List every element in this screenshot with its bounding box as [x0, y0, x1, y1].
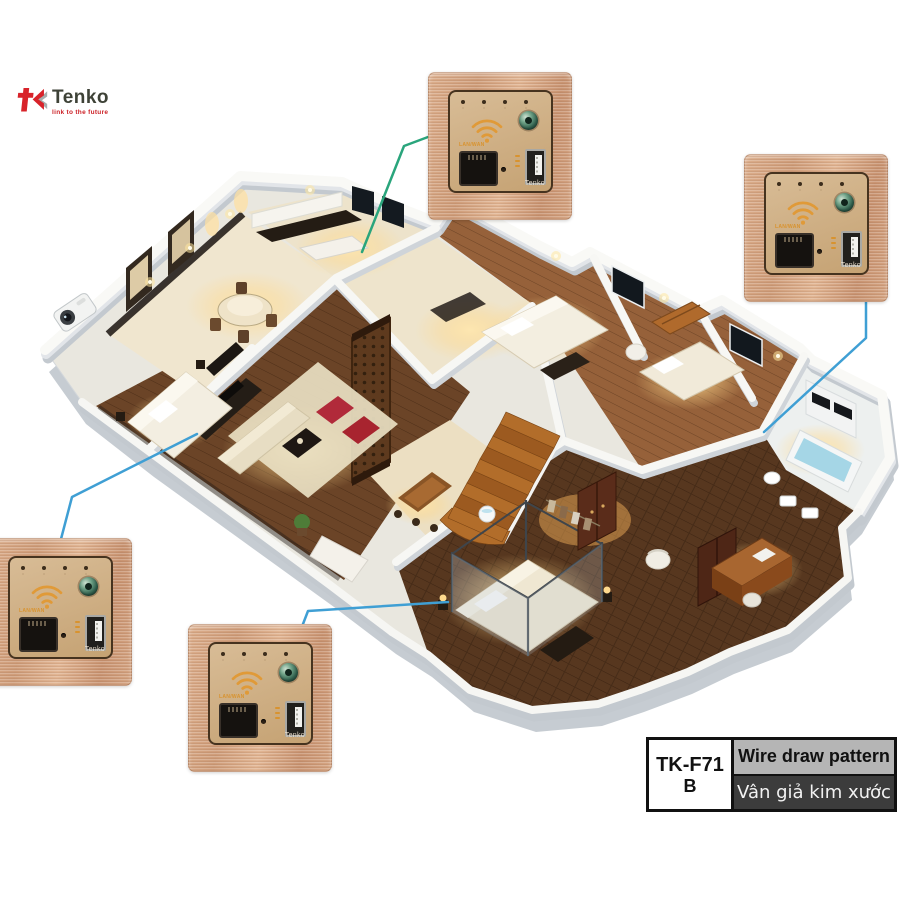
usb-label-marks: [75, 621, 80, 633]
product-variant: B: [684, 776, 697, 796]
product-label: TK-F71 B Wire draw pattern Vân giả kim x…: [646, 737, 897, 812]
product-model-cell: TK-F71 B: [649, 740, 734, 809]
device-brand-mark: Tenko: [285, 732, 305, 739]
led-indicators: [221, 652, 288, 656]
wifi-socket-bottom-left: LAN/WAN Tenko: [0, 538, 132, 686]
reset-pinhole: [501, 167, 506, 172]
device-panel: LAN/WAN Tenko: [448, 90, 553, 193]
lan-port-label: LAN/WAN: [19, 608, 45, 613]
power-button: [835, 193, 854, 212]
led-indicators: [21, 566, 88, 570]
reset-pinhole: [817, 249, 822, 254]
brand-tagline: link to the future: [52, 109, 109, 116]
device-panel: LAN/WAN Tenko: [8, 556, 113, 659]
usb-label-marks: [275, 707, 280, 719]
wifi-icon: [785, 197, 821, 227]
led-indicators: [777, 182, 844, 186]
wifi-icon: [469, 115, 505, 145]
power-button: [519, 111, 538, 130]
device-brand-mark: Tenko: [525, 180, 545, 187]
wifi-socket-bottom-center: LAN/WAN Tenko: [188, 624, 332, 772]
reset-pinhole: [61, 633, 66, 638]
ethernet-port: [459, 151, 498, 186]
device-brand-mark: Tenko: [85, 646, 105, 653]
usb-label-marks: [831, 237, 836, 249]
product-model: TK-F71: [656, 754, 724, 776]
power-button: [279, 663, 298, 682]
product-infographic: Tenko link to the future LAN/WAN Tenko: [0, 0, 900, 900]
lan-port-label: LAN/WAN: [219, 694, 245, 699]
brand-logo: Tenko link to the future: [14, 84, 134, 128]
pattern-name-en: Wire draw pattern: [734, 740, 894, 776]
ethernet-port: [219, 703, 258, 738]
power-button: [79, 577, 98, 596]
ethernet-port: [19, 617, 58, 652]
brand-name: Tenko: [52, 88, 109, 108]
reset-pinhole: [261, 719, 266, 724]
wifi-icon: [229, 667, 265, 697]
ethernet-port: [775, 233, 814, 268]
wifi-socket-top: LAN/WAN Tenko: [428, 72, 572, 220]
device-panel: LAN/WAN Tenko: [764, 172, 869, 275]
tk-logo-icon: [14, 84, 48, 118]
device-panel: LAN/WAN Tenko: [208, 642, 313, 745]
wifi-icon: [29, 581, 65, 611]
device-brand-mark: Tenko: [841, 262, 861, 269]
wifi-socket-right: LAN/WAN Tenko: [744, 154, 888, 302]
led-indicators: [461, 100, 528, 104]
lan-port-label: LAN/WAN: [459, 142, 485, 147]
lan-port-label: LAN/WAN: [775, 224, 801, 229]
usb-label-marks: [515, 155, 520, 167]
pattern-name-vi: Vân giả kim xước: [734, 776, 894, 810]
